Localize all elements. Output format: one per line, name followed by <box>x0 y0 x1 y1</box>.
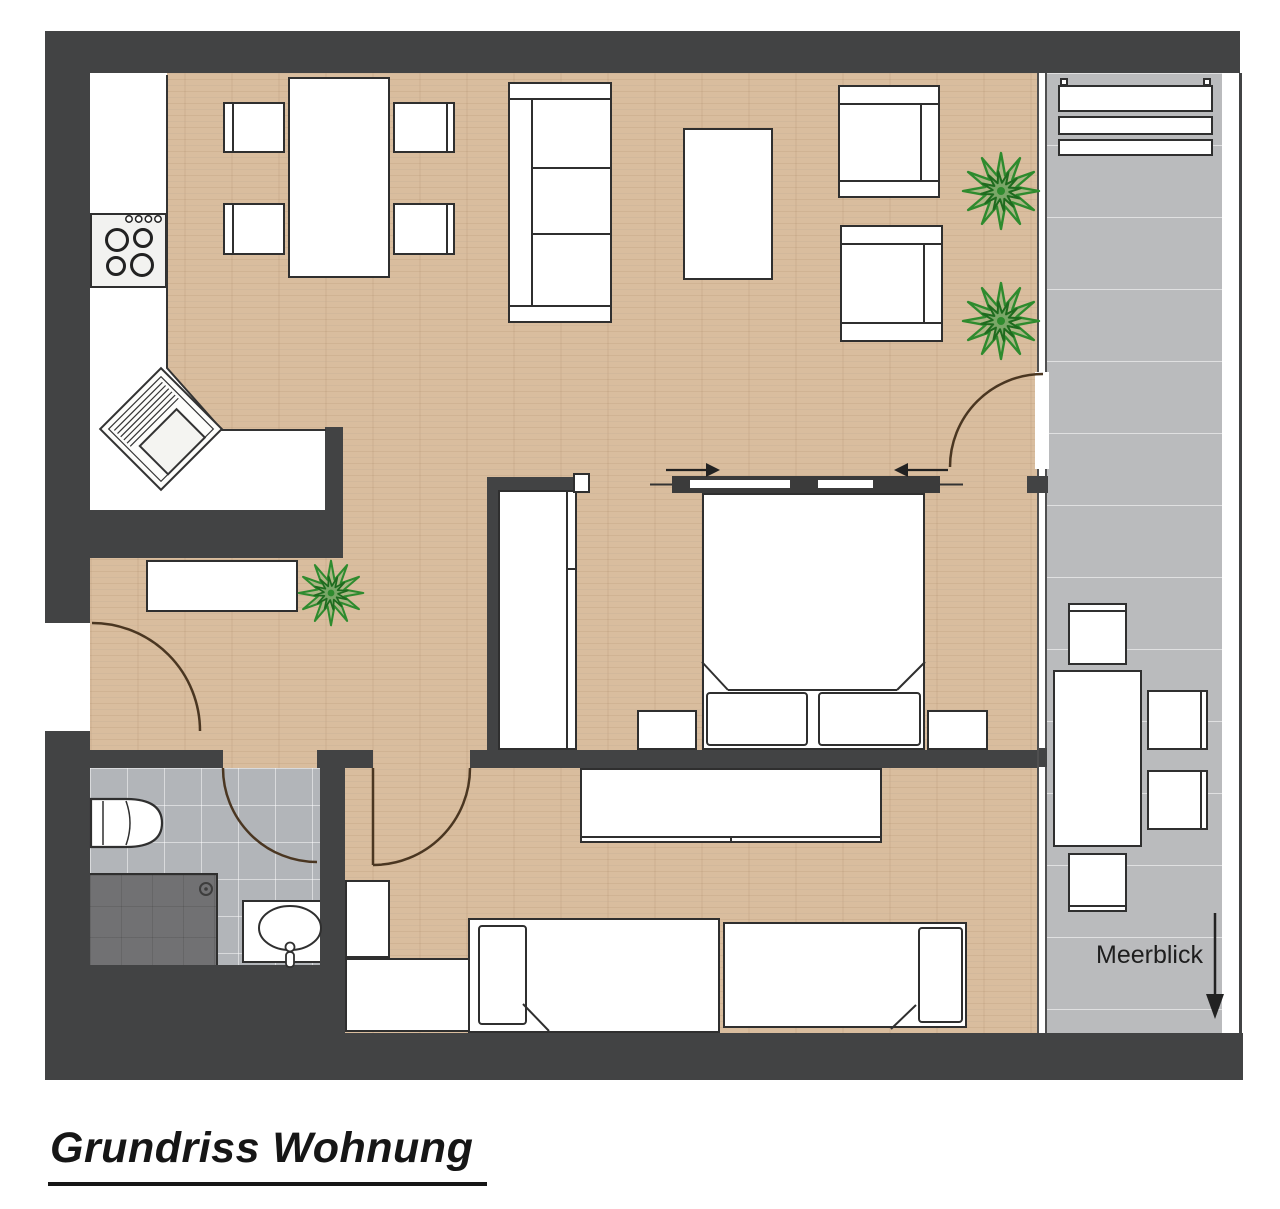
armchair-armrest <box>840 180 938 182</box>
dining-table <box>288 77 390 278</box>
wall-bedroom-vertical <box>487 477 498 763</box>
balcony-railing <box>1239 73 1242 1035</box>
chair-backrest <box>1070 610 1125 612</box>
pillow <box>818 692 921 746</box>
balcony-glass-wall <box>1037 73 1047 1033</box>
chair-backrest <box>1200 772 1202 828</box>
bedroom2-sideboard <box>580 768 882 843</box>
chair-backrest <box>446 205 448 253</box>
pillow <box>478 925 527 1025</box>
entrance-opening <box>45 623 90 731</box>
balcony-door-pier <box>1027 476 1048 493</box>
wardrobe-door-line <box>566 492 568 748</box>
sliding-door-pocket-cap <box>573 473 590 493</box>
balcony-chair <box>1068 603 1127 665</box>
balcony-door-opening <box>1035 372 1049 469</box>
wardrobe-small <box>345 958 470 1032</box>
wardrobe <box>498 490 577 750</box>
wall-bathroom-south-block <box>66 965 345 1033</box>
dining-chair <box>223 102 285 153</box>
wall-bathroom-right <box>320 768 345 965</box>
sofa <box>508 82 612 323</box>
armchair-backrest <box>840 103 938 105</box>
balcony-view-label: Meerblick <box>1096 941 1203 970</box>
page-title-text: Grundriss Wohnung <box>50 1124 473 1172</box>
wall-kitchen-vertical <box>325 427 343 512</box>
chair-backrest <box>232 205 234 253</box>
balcony-door-handle <box>1039 748 1047 767</box>
armchair-armrest <box>842 322 941 324</box>
armchair <box>838 85 940 198</box>
wall-mid-bedrooms <box>470 750 1037 768</box>
wall-bottom <box>45 1033 1243 1080</box>
hall-sideboard <box>146 560 298 612</box>
page-title: Grundriss Wohnung <box>48 1124 487 1186</box>
wall-bedroom-stub <box>487 477 573 490</box>
sofa-cushion-divider <box>531 233 610 235</box>
balcony-lounger-slat <box>1058 116 1213 135</box>
nightstand <box>927 710 988 750</box>
chair-backrest <box>1200 692 1202 748</box>
armchair-armrest <box>920 103 922 182</box>
lounger-hook <box>1203 78 1211 86</box>
dining-chair <box>223 203 285 255</box>
shower-tray <box>90 873 218 965</box>
wall-left-upper <box>45 31 90 623</box>
balcony-lounger-slat <box>1058 139 1213 156</box>
sofa-armrest <box>510 98 610 100</box>
balcony-chair <box>1147 690 1208 750</box>
armchair <box>840 225 943 342</box>
wall-kitchen-horizontal <box>87 510 343 558</box>
balcony-table <box>1053 670 1142 847</box>
sideboard-divider <box>730 836 732 843</box>
wardrobe-small <box>345 880 390 958</box>
chair-backrest <box>232 104 234 151</box>
wall-mid-bath <box>45 750 223 768</box>
wardrobe-handle <box>566 568 575 570</box>
chair-backrest <box>1070 905 1125 907</box>
balcony-lounger-slat <box>1058 85 1213 112</box>
sofa-backrest <box>531 98 533 307</box>
wall-top <box>45 31 1240 73</box>
coffee-table <box>683 128 773 280</box>
lounger-hook <box>1060 78 1068 86</box>
pillow <box>706 692 808 746</box>
stove <box>90 213 167 288</box>
sofa-cushion-divider <box>531 167 610 169</box>
floor-plan: Meerblick Grundriss Wohnung <box>0 0 1280 1209</box>
dining-chair <box>393 203 455 255</box>
sofa-armrest <box>510 305 610 307</box>
dining-chair <box>393 102 455 153</box>
chair-backrest <box>446 104 448 151</box>
armchair-armrest <box>923 243 925 324</box>
balcony-chair <box>1068 853 1127 912</box>
nightstand <box>637 710 697 750</box>
pillow <box>918 927 963 1023</box>
armchair-backrest <box>842 243 941 245</box>
balcony-chair <box>1147 770 1208 830</box>
wall-mid-hall <box>317 750 373 768</box>
